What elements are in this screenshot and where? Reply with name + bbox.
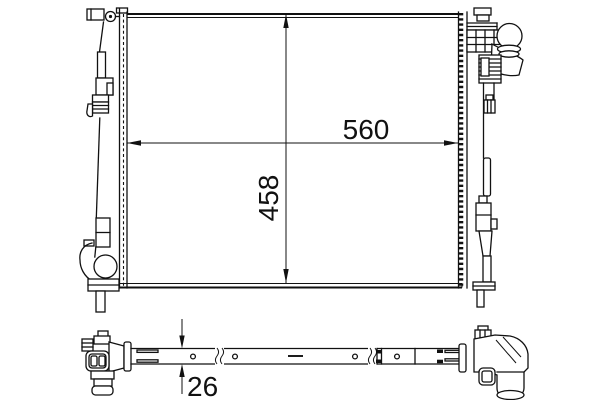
slot	[445, 359, 460, 361]
break-mark	[368, 348, 377, 366]
radiator-technical-drawing-page: 560 458	[0, 0, 600, 400]
left-lower-bracket	[96, 218, 110, 247]
section-joint	[376, 349, 382, 365]
height-arrow-bottom	[283, 269, 288, 283]
radiator-front-view	[80, 8, 523, 312]
height-dimension: 458	[253, 14, 289, 283]
right-tank-ribs-lower	[479, 55, 501, 83]
thickness-arrow-down	[179, 336, 184, 349]
bottom-left-mounting-pin	[88, 279, 119, 312]
rivet-hole	[395, 354, 400, 359]
break-mark	[215, 348, 224, 366]
left-header-cap	[117, 8, 128, 13]
height-dimension-label: 458	[253, 175, 284, 222]
outlet-opening	[497, 391, 524, 400]
bottom-right-mounting-pin	[473, 282, 495, 307]
thickness-dimension: 26	[179, 319, 218, 400]
right-bracket-pin	[491, 219, 497, 229]
right-slim-rail	[484, 158, 491, 196]
drain-plug-circle	[94, 255, 117, 278]
height-arrow-top	[283, 14, 288, 28]
right-tank-assembly	[467, 8, 523, 307]
side-left-inlet-fitting	[82, 331, 131, 395]
left-header-plate	[117, 8, 128, 288]
right-tank-ribs-upper	[467, 23, 497, 30]
rivet-hole	[191, 354, 196, 359]
core-top-edge	[127, 14, 458, 18]
rivet-hole	[233, 354, 238, 359]
top-left-mounting-bracket	[87, 9, 120, 22]
core-bottom-edge	[120, 284, 462, 288]
thickness-dimension-label: 26	[187, 371, 218, 400]
right-lower-bracket	[476, 196, 497, 282]
side-profile-body	[131, 348, 460, 366]
width-dimension: 560	[127, 114, 458, 146]
slot	[445, 350, 460, 352]
thickness-arrow-up	[179, 364, 184, 377]
side-right-outlet-elbow	[459, 326, 528, 400]
radiator-side-view: 26	[82, 319, 528, 400]
slot	[137, 360, 158, 362]
right-side-clip	[484, 95, 495, 113]
width-arrow-right	[444, 140, 458, 145]
filler-neck-cap	[497, 24, 522, 58]
fitting-taper	[109, 342, 124, 372]
top-right-bracket	[474, 8, 491, 15]
width-dimension-label: 560	[343, 114, 390, 145]
left-inlet-connector	[87, 52, 113, 117]
radiator-technical-drawing: 560 458	[0, 0, 600, 400]
left-flange	[124, 342, 131, 371]
width-arrow-left	[127, 140, 141, 145]
rivet-hole	[353, 354, 358, 359]
connector-hook	[87, 104, 93, 117]
right-flange	[459, 344, 466, 372]
slot	[137, 350, 158, 352]
right-header-serrated	[459, 12, 468, 288]
elbow-body	[474, 335, 528, 397]
